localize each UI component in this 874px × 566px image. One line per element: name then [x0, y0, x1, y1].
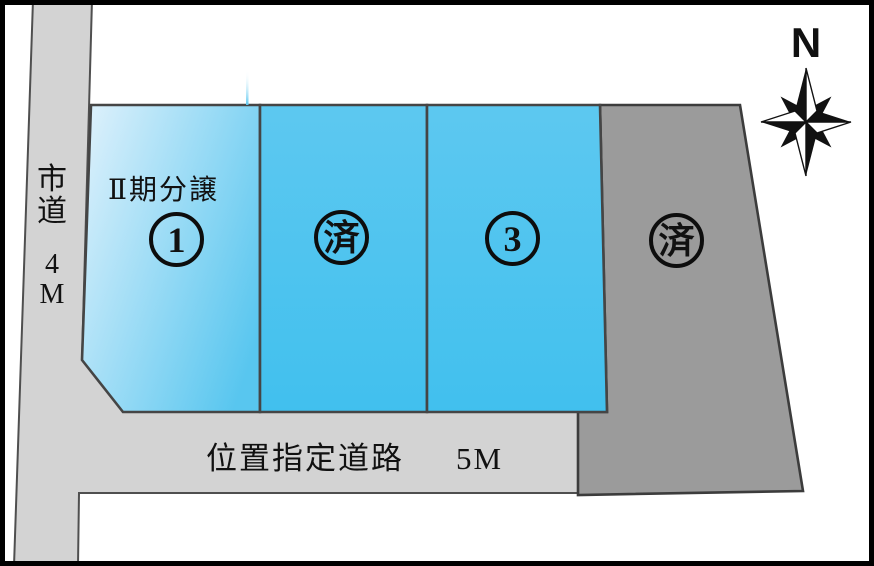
- city-road-width: 4 M: [31, 250, 73, 310]
- site-plan-drawing: [0, 0, 874, 566]
- stray-mark: [246, 70, 249, 105]
- phase-label: Ⅱ期分譲: [108, 168, 219, 208]
- lot-4-shape[interactable]: [578, 105, 803, 495]
- city-road-label: 市 道 4 M: [31, 164, 73, 310]
- site-plan: 市 道 4 M Ⅱ期分譲 1 済 3 済 位置指定道路 5M N: [0, 0, 874, 566]
- city-road-name: 市 道: [31, 164, 73, 228]
- lot-4-marker[interactable]: 済: [649, 213, 704, 268]
- lot-1-marker[interactable]: 1: [149, 212, 204, 267]
- designated-road-label: 位置指定道路 5M: [206, 433, 503, 478]
- designated-road-width: 5M: [456, 441, 503, 477]
- compass-point-south: [795, 122, 817, 176]
- lot-2-marker[interactable]: 済: [314, 210, 369, 265]
- lot-3-marker[interactable]: 3: [485, 211, 540, 266]
- north-label: N: [780, 22, 832, 64]
- compass-rose: [761, 68, 851, 176]
- designated-road-name: 位置指定道路: [206, 433, 404, 478]
